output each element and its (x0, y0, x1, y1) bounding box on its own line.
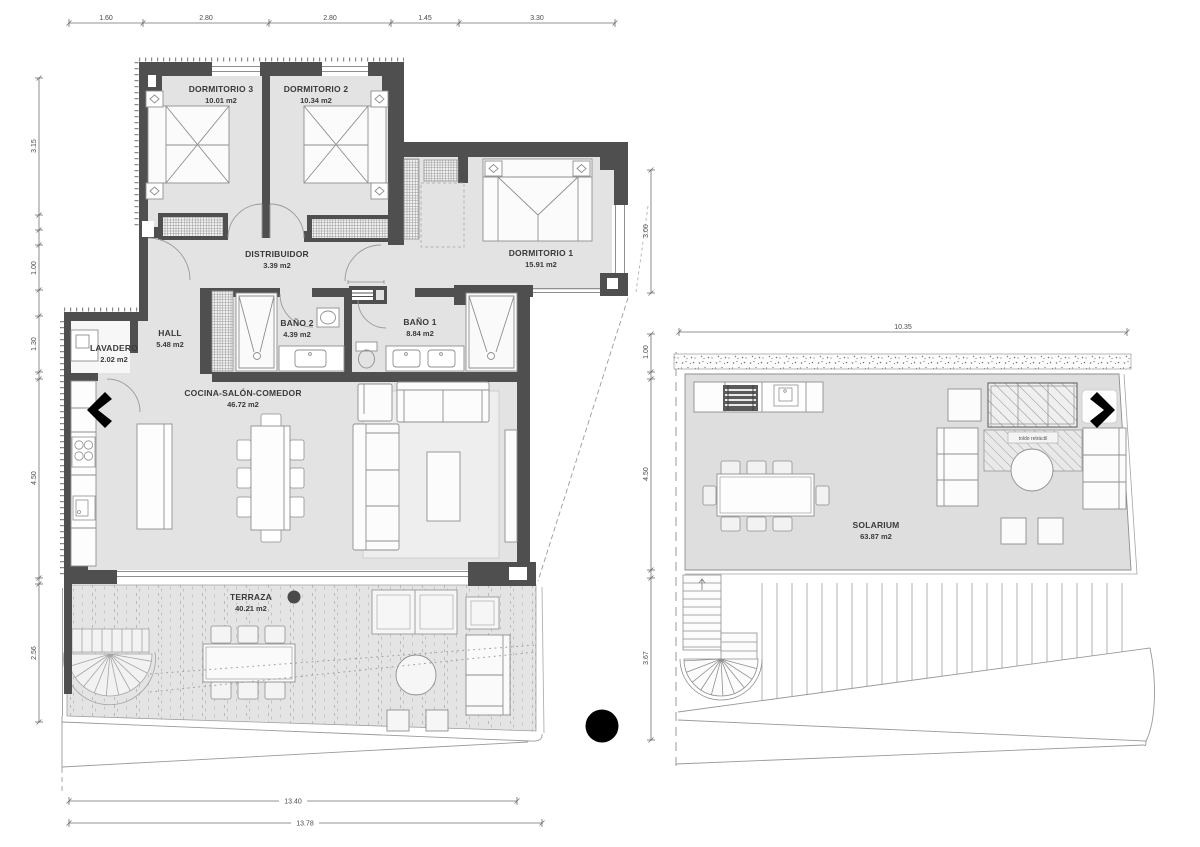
svg-text:LAVADERO: LAVADERO (90, 343, 138, 353)
svg-text:63.87 m2: 63.87 m2 (860, 532, 892, 541)
svg-text:2.80: 2.80 (323, 15, 337, 22)
svg-text:15.91 m2: 15.91 m2 (525, 260, 557, 269)
svg-text:46.72 m2: 46.72 m2 (227, 400, 259, 409)
svg-text:1.45: 1.45 (418, 15, 432, 22)
svg-text:BAÑO 1: BAÑO 1 (403, 317, 436, 327)
svg-text:COCINA-SALÓN-COMEDOR: COCINA-SALÓN-COMEDOR (184, 387, 301, 398)
svg-text:3.15: 3.15 (31, 139, 38, 153)
svg-text:HALL: HALL (158, 328, 181, 338)
svg-text:4.50: 4.50 (643, 467, 650, 481)
svg-text:2.80: 2.80 (199, 15, 213, 22)
svg-text:10.01 m2: 10.01 m2 (205, 96, 237, 105)
svg-text:8.84 m2: 8.84 m2 (406, 329, 434, 338)
svg-text:5.48 m2: 5.48 m2 (156, 340, 184, 349)
svg-text:1.60: 1.60 (99, 15, 113, 22)
svg-text:2.56: 2.56 (31, 646, 38, 660)
svg-text:TERRAZA: TERRAZA (230, 592, 272, 602)
svg-text:10.34 m2: 10.34 m2 (300, 96, 332, 105)
svg-text:4.50: 4.50 (31, 471, 38, 485)
svg-text:3.39 m2: 3.39 m2 (263, 261, 291, 270)
svg-text:toldo retráctil: toldo retráctil (1019, 436, 1048, 442)
svg-text:40.21 m2: 40.21 m2 (235, 604, 267, 613)
svg-text:13.78: 13.78 (296, 821, 314, 828)
svg-text:10.35: 10.35 (894, 324, 912, 331)
svg-text:2.02 m2: 2.02 m2 (100, 355, 128, 364)
svg-text:SOLARIUM: SOLARIUM (853, 520, 900, 530)
svg-text:3.67: 3.67 (643, 651, 650, 665)
svg-text:3.30: 3.30 (530, 15, 544, 22)
svg-text:1.00: 1.00 (643, 345, 650, 359)
svg-text:1.00: 1.00 (31, 261, 38, 275)
svg-text:13.40: 13.40 (284, 799, 302, 806)
svg-text:DISTRIBUIDOR: DISTRIBUIDOR (245, 249, 309, 259)
svg-text:DORMITORIO 1: DORMITORIO 1 (509, 248, 574, 258)
svg-text:BAÑO 2: BAÑO 2 (280, 318, 313, 328)
svg-text:4.39 m2: 4.39 m2 (283, 330, 311, 339)
svg-text:3.00: 3.00 (643, 224, 650, 238)
svg-text:1.30: 1.30 (31, 337, 38, 351)
svg-text:DORMITORIO 2: DORMITORIO 2 (284, 84, 349, 94)
svg-text:DORMITORIO 3: DORMITORIO 3 (189, 84, 254, 94)
